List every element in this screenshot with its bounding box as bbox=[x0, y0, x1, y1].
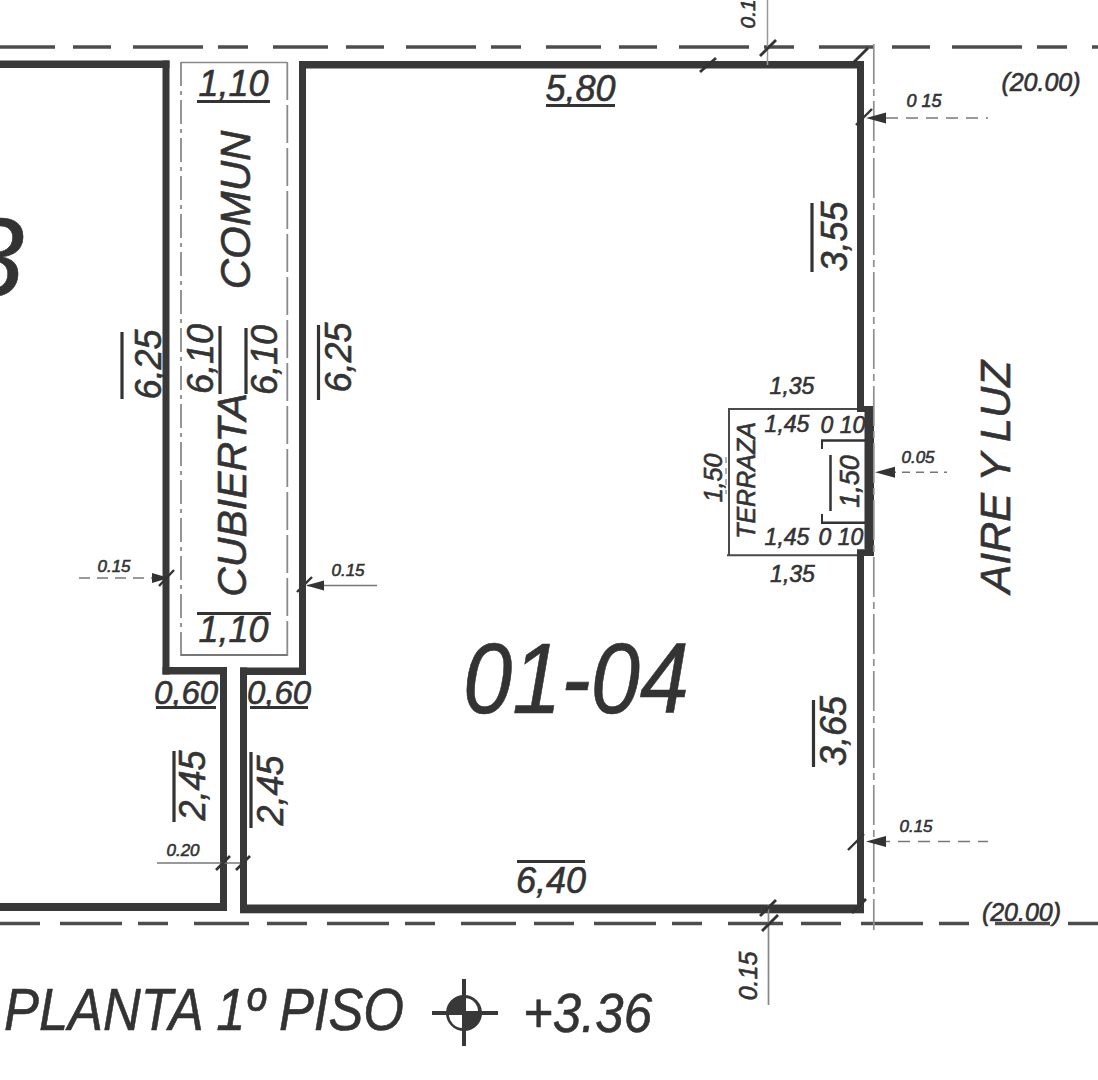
svg-text:5,80: 5,80 bbox=[545, 68, 615, 109]
svg-text:0 10: 0 10 bbox=[821, 412, 866, 438]
svg-text:0.15: 0.15 bbox=[331, 561, 365, 580]
svg-text:(20.00): (20.00) bbox=[1001, 68, 1080, 96]
svg-text:1,35: 1,35 bbox=[770, 373, 815, 399]
svg-text:+3.36: +3.36 bbox=[523, 981, 653, 1044]
svg-text:6,10: 6,10 bbox=[244, 325, 285, 395]
svg-text:3,65: 3,65 bbox=[813, 695, 854, 766]
svg-text:AIRE Y LUZ: AIRE Y LUZ bbox=[971, 359, 1019, 596]
svg-text:0.15: 0.15 bbox=[97, 557, 131, 576]
svg-text:6,25: 6,25 bbox=[318, 321, 359, 392]
svg-text:0 10: 0 10 bbox=[819, 524, 864, 550]
svg-text:2,45: 2,45 bbox=[250, 754, 291, 826]
svg-text:1,10: 1,10 bbox=[198, 63, 268, 104]
svg-text:6,25: 6,25 bbox=[128, 328, 169, 399]
svg-text:(20.00): (20.00) bbox=[982, 898, 1061, 926]
svg-text:1,45: 1,45 bbox=[765, 524, 810, 550]
svg-text:01-04: 01-04 bbox=[463, 622, 689, 734]
svg-text:3,55: 3,55 bbox=[814, 200, 855, 271]
svg-text:2,45: 2,45 bbox=[172, 749, 213, 821]
svg-text:1,35: 1,35 bbox=[770, 561, 815, 587]
svg-text:0,60: 0,60 bbox=[154, 674, 219, 711]
svg-text:COMUN: COMUN bbox=[212, 130, 259, 289]
svg-text:0.05: 0.05 bbox=[901, 448, 935, 467]
svg-text:6,10: 6,10 bbox=[180, 324, 221, 394]
svg-text:3: 3 bbox=[0, 195, 24, 320]
svg-text:0.15: 0.15 bbox=[736, 0, 759, 28]
svg-text:PLANTA 1º PISO: PLANTA 1º PISO bbox=[4, 977, 404, 1043]
svg-text:0 15: 0 15 bbox=[906, 91, 942, 111]
svg-text:1,10: 1,10 bbox=[198, 609, 268, 650]
svg-text:6,40: 6,40 bbox=[516, 860, 586, 901]
svg-text:1,45: 1,45 bbox=[765, 411, 810, 437]
svg-text:0.15: 0.15 bbox=[899, 817, 933, 836]
svg-text:1,50: 1,50 bbox=[835, 455, 865, 508]
svg-text:0,60: 0,60 bbox=[247, 674, 312, 711]
svg-text:0.15: 0.15 bbox=[734, 952, 762, 1001]
svg-text:0.20: 0.20 bbox=[166, 841, 200, 860]
svg-text:1,50: 1,50 bbox=[699, 454, 727, 503]
svg-text:CUBIERTA: CUBIERTA bbox=[209, 393, 255, 597]
svg-text:TERRAZA: TERRAZA bbox=[732, 422, 760, 539]
